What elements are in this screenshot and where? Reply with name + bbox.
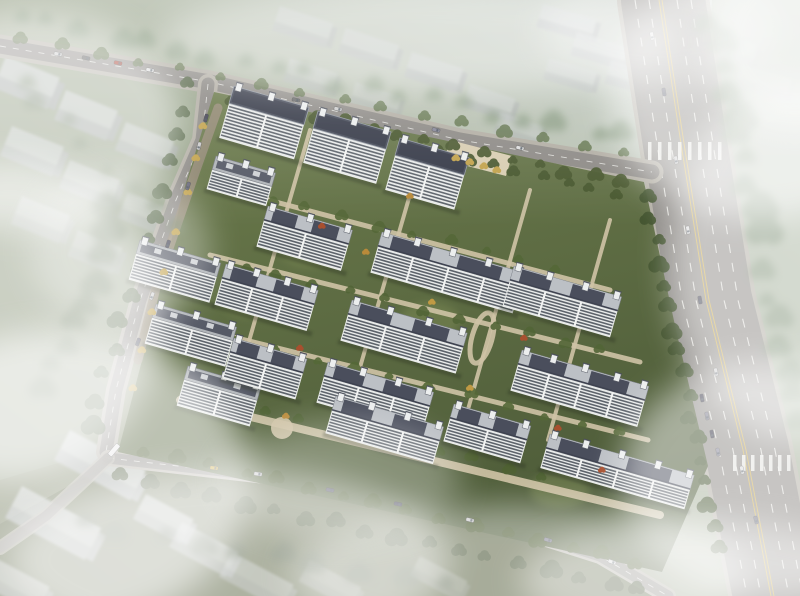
aerial-site-render bbox=[0, 0, 800, 596]
render-canvas bbox=[0, 0, 800, 596]
atmosphere-veil bbox=[0, 0, 800, 596]
